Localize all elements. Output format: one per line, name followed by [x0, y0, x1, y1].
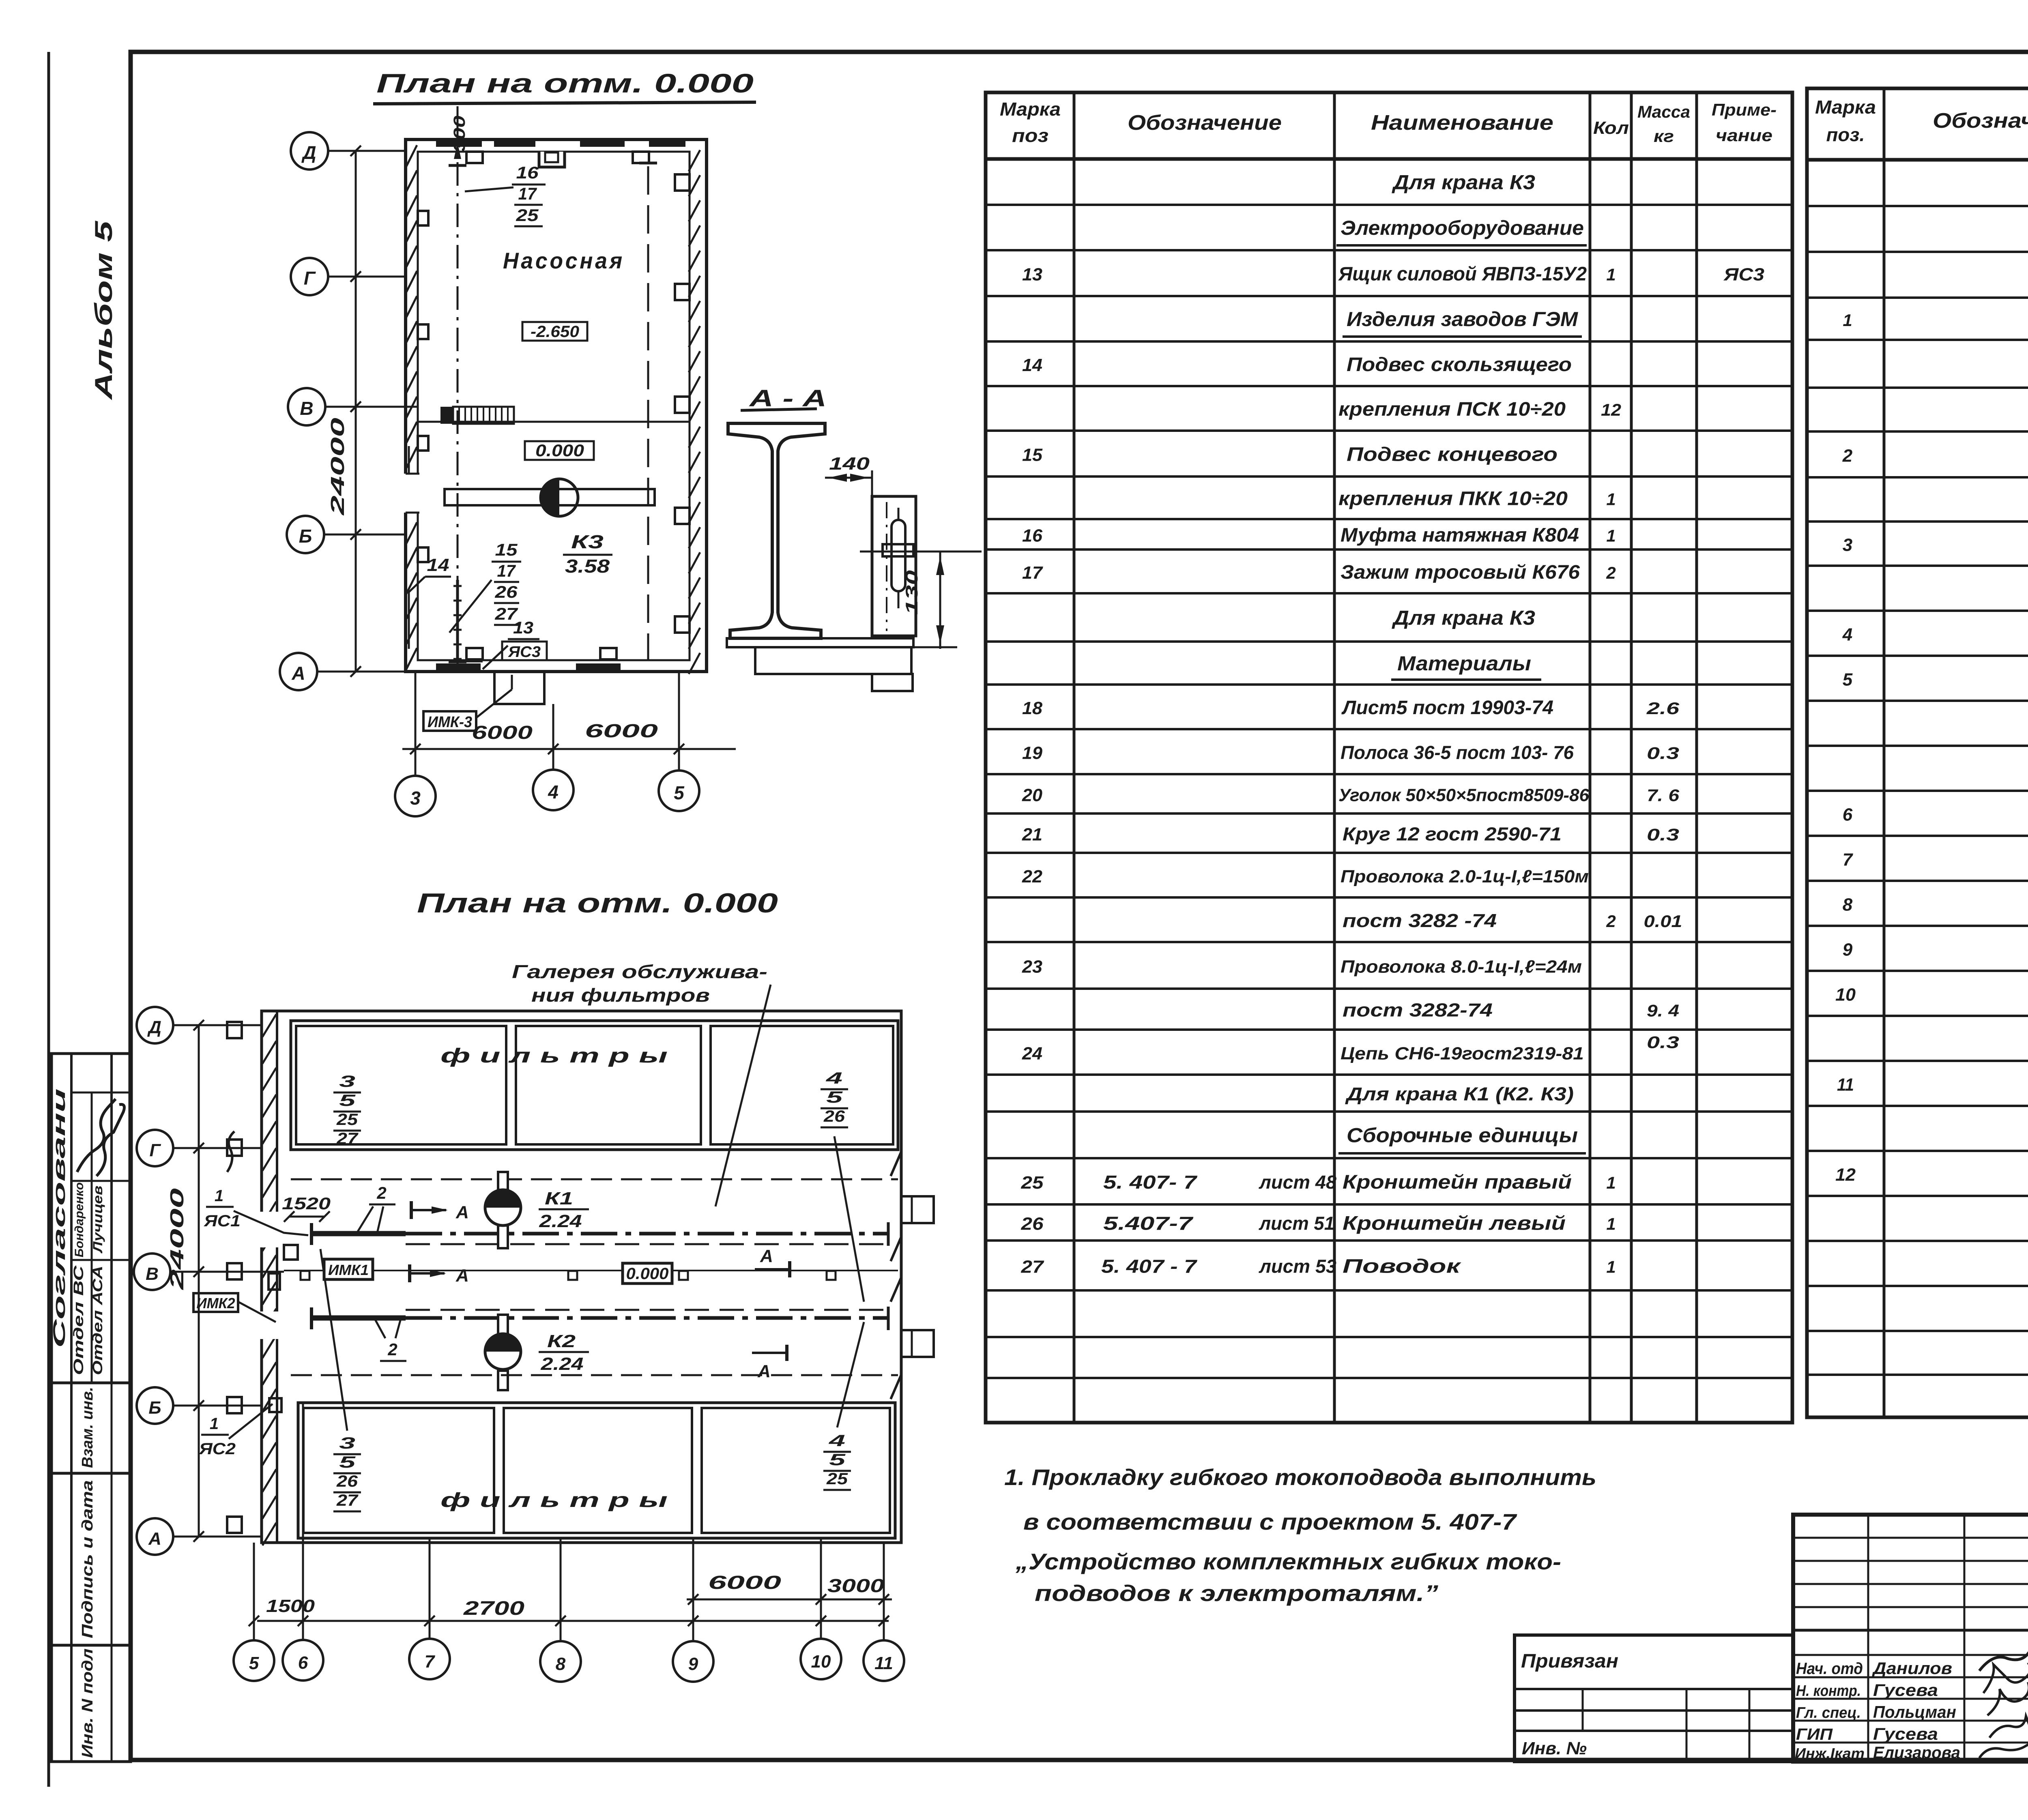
svg-text:2.6: 2.6 — [1646, 699, 1680, 718]
svg-text:Лучицев: Лучицев — [90, 1186, 105, 1253]
svg-text:Елизарова: Елизарова — [1873, 1743, 1960, 1762]
svg-text:6000: 6000 — [708, 1572, 782, 1593]
svg-text:5. 407 - 7: 5. 407 - 7 — [1101, 1256, 1198, 1277]
svg-text:„Устройство комплектных гиб: „Устройство комплектных гибких токо- — [1015, 1549, 1561, 1574]
svg-text:Насосная: Насосная — [503, 248, 625, 273]
svg-text:0.3: 0.3 — [1647, 825, 1679, 844]
svg-text:Уголок 50×50×5пост8509-86: Уголок 50×50×5пост8509-86 — [1338, 786, 1590, 805]
svg-text:4: 4 — [828, 1432, 845, 1450]
svg-text:6000: 6000 — [472, 722, 533, 743]
svg-text:0.01: 0.01 — [1644, 912, 1682, 931]
svg-text:1: 1 — [1606, 1173, 1616, 1192]
svg-text:4: 4 — [825, 1069, 842, 1087]
svg-text:5: 5 — [339, 1453, 356, 1471]
svg-text:Нач. отд: Нач. отд — [1796, 1660, 1863, 1678]
svg-text:лист 53: лист 53 — [1259, 1256, 1336, 1277]
svg-text:Кронштейн левый: Кронштейн левый — [1343, 1213, 1566, 1234]
svg-text:Кронштейн правый: Кронштейн правый — [1343, 1172, 1572, 1193]
svg-text:19: 19 — [1022, 743, 1043, 763]
svg-text:Изделия заводов ГЭМ: Изделия заводов ГЭМ — [1347, 308, 1578, 331]
svg-text:3: 3 — [1843, 535, 1852, 555]
svg-text:27: 27 — [1020, 1257, 1044, 1277]
svg-text:поз.: поз. — [1826, 124, 1865, 145]
svg-text:130: 130 — [902, 570, 921, 615]
svg-text:1: 1 — [215, 1187, 223, 1205]
svg-text:25: 25 — [1020, 1173, 1044, 1193]
svg-text:9: 9 — [688, 1654, 698, 1674]
svg-text:Зажим тросовый К676: Зажим тросовый К676 — [1341, 562, 1580, 583]
svg-text:14: 14 — [1022, 355, 1042, 375]
svg-text:14: 14 — [427, 555, 449, 575]
svg-text:2.24: 2.24 — [539, 1211, 582, 1231]
svg-text:Наименование: Наименование — [1371, 111, 1553, 135]
svg-text:5: 5 — [829, 1451, 846, 1469]
svg-text:7. 6: 7. 6 — [1647, 786, 1680, 805]
svg-text:-2.650: -2.650 — [531, 323, 579, 341]
svg-text:1. Прокладку гибкого токопод: 1. Прокладку гибкого токоподвода выполни… — [1004, 1464, 1596, 1490]
svg-text:15: 15 — [495, 540, 518, 559]
svg-text:3000: 3000 — [827, 1575, 885, 1596]
svg-text:9. 4: 9. 4 — [1647, 1001, 1679, 1020]
svg-text:ИМК1: ИМК1 — [328, 1262, 369, 1278]
svg-text:5: 5 — [674, 782, 685, 803]
svg-text:2: 2 — [387, 1340, 397, 1359]
svg-text:К2: К2 — [547, 1331, 576, 1351]
svg-text:26: 26 — [823, 1107, 845, 1125]
svg-text:Муфта натяжная К804: Муфта натяжная К804 — [1341, 525, 1579, 546]
svg-text:В: В — [300, 398, 313, 419]
svg-text:ф и л ь т р ы: ф и л ь т р ы — [440, 1489, 668, 1511]
svg-text:2: 2 — [1606, 563, 1616, 582]
svg-text:25: 25 — [336, 1111, 358, 1129]
svg-text:Инв. №: Инв. № — [1522, 1738, 1587, 1758]
svg-text:Проволока 2.0-1ц-I,ℓ=150м: Проволока 2.0-1ц-I,ℓ=150м — [1341, 867, 1589, 886]
svg-text:Марка: Марка — [1000, 99, 1061, 120]
svg-text:1: 1 — [210, 1415, 219, 1433]
svg-text:Круг 12 гост 2590-71: Круг 12 гост 2590-71 — [1343, 824, 1562, 845]
svg-text:кг: кг — [1654, 127, 1674, 146]
svg-text:11: 11 — [1837, 1075, 1854, 1095]
svg-text:25: 25 — [516, 206, 539, 225]
svg-text:13: 13 — [1022, 265, 1042, 285]
svg-text:10: 10 — [1835, 985, 1856, 1005]
svg-text:4: 4 — [1842, 625, 1852, 645]
svg-text:ИМК-3: ИМК-3 — [428, 714, 472, 731]
svg-text:Польцман: Польцман — [1873, 1702, 1956, 1721]
svg-text:подводов к электроталям.”: подводов к электроталям.” — [1035, 1580, 1438, 1606]
svg-text:3.58: 3.58 — [565, 556, 610, 577]
svg-text:7: 7 — [425, 1652, 436, 1672]
svg-text:27: 27 — [336, 1130, 359, 1148]
svg-text:ЯС1: ЯС1 — [204, 1212, 241, 1230]
svg-text:План на отм. 0.000: План на отм. 0.000 — [376, 68, 754, 98]
svg-text:А: А — [148, 1529, 161, 1549]
svg-text:ЯС3: ЯС3 — [508, 644, 541, 661]
svg-text:Гусева: Гусева — [1873, 1724, 1938, 1743]
svg-text:16: 16 — [1022, 526, 1043, 546]
svg-text:5.407-7: 5.407-7 — [1103, 1213, 1194, 1234]
svg-text:4: 4 — [548, 781, 559, 803]
svg-text:12: 12 — [1835, 1165, 1856, 1185]
svg-text:Ящик силовой ЯВПЗ-15У2: Ящик силовой ЯВПЗ-15У2 — [1338, 264, 1587, 285]
svg-text:17: 17 — [497, 561, 516, 580]
svg-text:16: 16 — [516, 163, 539, 182]
svg-text:6: 6 — [298, 1653, 308, 1673]
svg-text:Гусева: Гусева — [1873, 1680, 1938, 1700]
svg-text:7: 7 — [1843, 850, 1854, 870]
svg-text:17: 17 — [518, 184, 537, 203]
svg-text:1500: 1500 — [266, 1596, 315, 1616]
svg-text:11: 11 — [874, 1653, 893, 1673]
svg-text:5: 5 — [826, 1088, 843, 1106]
svg-text:0.000: 0.000 — [626, 1265, 669, 1283]
svg-text:Г: Г — [149, 1140, 161, 1160]
svg-text:Инв. N подл: Инв. N подл — [79, 1648, 96, 1758]
svg-text:Для крана К1 (К2. К3): Для крана К1 (К2. К3) — [1345, 1084, 1574, 1105]
svg-text:26: 26 — [494, 582, 518, 601]
svg-text:ИМК2: ИМК2 — [197, 1295, 235, 1311]
svg-text:Поводок: Поводок — [1343, 1256, 1462, 1277]
svg-text:Согласовани: Согласовани — [49, 1088, 69, 1348]
svg-text:5: 5 — [339, 1092, 356, 1110]
svg-text:План на отм. 0.000: План на отм. 0.000 — [417, 888, 778, 919]
svg-text:1: 1 — [1606, 490, 1616, 509]
svg-text:0.000: 0.000 — [535, 441, 584, 460]
svg-text:26: 26 — [1020, 1214, 1044, 1234]
svg-text:1: 1 — [1606, 1215, 1616, 1234]
svg-text:Кол: Кол — [1593, 118, 1629, 138]
svg-text:в соответствии с проектом: в соответствии с проектом 5. 407-7 — [1023, 1509, 1517, 1535]
svg-text:Подвес скользящего: Подвес скользящего — [1347, 354, 1572, 376]
svg-text:Н. контр.: Н. контр. — [1796, 1683, 1861, 1700]
svg-text:10: 10 — [811, 1652, 831, 1672]
svg-text:1: 1 — [1606, 265, 1616, 284]
svg-text:Масса: Масса — [1637, 102, 1690, 121]
svg-text:0.3: 0.3 — [1647, 1033, 1679, 1052]
svg-text:140: 140 — [829, 454, 870, 474]
svg-text:Данилов: Данилов — [1872, 1659, 1952, 1678]
svg-text:ф и л ь т р ы: ф и л ь т р ы — [440, 1044, 668, 1067]
svg-text:ГИП: ГИП — [1796, 1726, 1833, 1743]
svg-text:3: 3 — [410, 788, 421, 809]
svg-text:Электрооборудование: Электрооборудование — [1341, 217, 1584, 239]
svg-text:Отдел ВС: Отдел ВС — [71, 1265, 86, 1375]
svg-text:Лист5 пост 19903-74: Лист5 пост 19903-74 — [1341, 697, 1553, 719]
svg-text:24: 24 — [1022, 1044, 1042, 1064]
svg-text:Марка: Марка — [1815, 97, 1876, 118]
svg-text:Обозначение: Обозначение — [1933, 109, 2028, 133]
svg-text:17: 17 — [1022, 563, 1044, 583]
svg-text:13: 13 — [513, 618, 533, 637]
svg-text:2: 2 — [1606, 912, 1616, 931]
svg-text:Проволока 8.0-1ц-I,ℓ=24м: Проволока 8.0-1ц-I,ℓ=24м — [1341, 957, 1582, 977]
svg-text:24000: 24000 — [327, 417, 348, 516]
svg-text:К3: К3 — [571, 531, 604, 552]
svg-text:Материалы: Материалы — [1397, 652, 1531, 675]
svg-text:К1: К1 — [545, 1189, 573, 1208]
svg-text:поз: поз — [1012, 125, 1048, 146]
svg-text:5: 5 — [249, 1653, 259, 1673]
svg-text:22: 22 — [1022, 867, 1043, 886]
svg-text:Инж.Iкат: Инж.Iкат — [1795, 1745, 1865, 1762]
svg-text:ЯС3: ЯС3 — [1723, 265, 1764, 285]
svg-text:5: 5 — [1843, 670, 1853, 690]
svg-text:пост 3282-74: пост 3282-74 — [1343, 1000, 1493, 1021]
svg-text:5. 407- 7: 5. 407- 7 — [1103, 1172, 1198, 1193]
svg-text:23: 23 — [1022, 957, 1042, 977]
svg-text:А: А — [760, 1246, 773, 1266]
svg-text:12: 12 — [1601, 400, 1621, 419]
svg-text:Альбом 5: Альбом 5 — [90, 220, 117, 401]
svg-text:Приме-: Приме- — [1712, 100, 1777, 119]
svg-text:2700: 2700 — [463, 1598, 525, 1619]
svg-text:27: 27 — [336, 1492, 359, 1509]
svg-text:0.3: 0.3 — [1647, 744, 1679, 763]
svg-text:1520: 1520 — [282, 1194, 331, 1213]
svg-text:А: А — [757, 1361, 771, 1381]
svg-text:В: В — [146, 1264, 159, 1284]
svg-text:Обозначение: Обозначение — [1128, 111, 1282, 135]
svg-text:Г: Г — [304, 268, 316, 289]
svg-text:Б: Б — [299, 526, 312, 547]
svg-text:9: 9 — [1843, 940, 1853, 960]
svg-text:А: А — [291, 663, 305, 684]
svg-text:ЯС2: ЯС2 — [199, 1440, 236, 1458]
svg-text:3: 3 — [339, 1434, 355, 1452]
svg-text:Цепь СН6-19гост2319-81: Цепь СН6-19гост2319-81 — [1341, 1044, 1584, 1064]
svg-text:1: 1 — [1606, 1258, 1616, 1277]
svg-text:3: 3 — [339, 1073, 355, 1090]
svg-text:крепления ПКК 10÷20: крепления ПКК 10÷20 — [1338, 488, 1568, 510]
svg-text:Б: Б — [148, 1398, 161, 1418]
svg-text:лист 48: лист 48 — [1259, 1172, 1336, 1193]
svg-text:1: 1 — [1606, 526, 1616, 545]
svg-text:Полоса 36-5 пост 103- 76: Полоса 36-5 пост 103- 76 — [1341, 742, 1574, 763]
svg-text:Подпись и дата: Подпись и дата — [79, 1480, 96, 1638]
svg-text:Для крана К3: Для крана К3 — [1392, 607, 1536, 629]
svg-text:Галерея обслужива-: Галерея обслужива- — [512, 961, 767, 982]
svg-text:Бондаренко: Бондаренко — [73, 1183, 86, 1258]
svg-text:А: А — [455, 1202, 469, 1222]
svg-text:пост 3282 -74: пост 3282 -74 — [1343, 910, 1497, 931]
svg-text:Привязан: Привязан — [1521, 1650, 1618, 1672]
svg-text:лист 51: лист 51 — [1259, 1213, 1334, 1234]
svg-text:6: 6 — [1843, 805, 1853, 825]
svg-text:18: 18 — [1022, 698, 1043, 718]
svg-text:ния фильтров: ния фильтров — [531, 985, 710, 1006]
svg-text:Для крана К3: Для крана К3 — [1392, 171, 1536, 194]
svg-text:300: 300 — [451, 116, 468, 152]
svg-text:21: 21 — [1022, 825, 1042, 845]
svg-text:Гл. спец.: Гл. спец. — [1796, 1704, 1861, 1721]
svg-text:Д: Д — [147, 1017, 161, 1037]
svg-text:Сборочные единицы: Сборочные единицы — [1347, 1124, 1578, 1147]
svg-text:26: 26 — [336, 1472, 358, 1490]
svg-text:2: 2 — [1842, 446, 1853, 466]
svg-text:8: 8 — [556, 1654, 566, 1674]
svg-text:2.24: 2.24 — [540, 1354, 583, 1374]
svg-text:Подвес концевого: Подвес концевого — [1347, 444, 1558, 466]
svg-text:Взам. инв.: Взам. инв. — [79, 1387, 96, 1468]
svg-text:чание: чание — [1716, 126, 1772, 145]
svg-text:25: 25 — [826, 1470, 848, 1488]
svg-text:крепления ПСК 10÷20: крепления ПСК 10÷20 — [1338, 399, 1566, 420]
svg-text:15: 15 — [1022, 445, 1043, 465]
svg-text:6000: 6000 — [585, 720, 658, 741]
svg-text:А: А — [455, 1266, 469, 1286]
svg-text:Д: Д — [301, 142, 316, 163]
svg-text:20: 20 — [1022, 786, 1043, 805]
svg-text:2: 2 — [376, 1183, 386, 1202]
svg-text:8: 8 — [1843, 895, 1853, 915]
svg-text:1: 1 — [1843, 311, 1852, 330]
svg-text:Отдел АСА: Отдел АСА — [90, 1266, 105, 1375]
